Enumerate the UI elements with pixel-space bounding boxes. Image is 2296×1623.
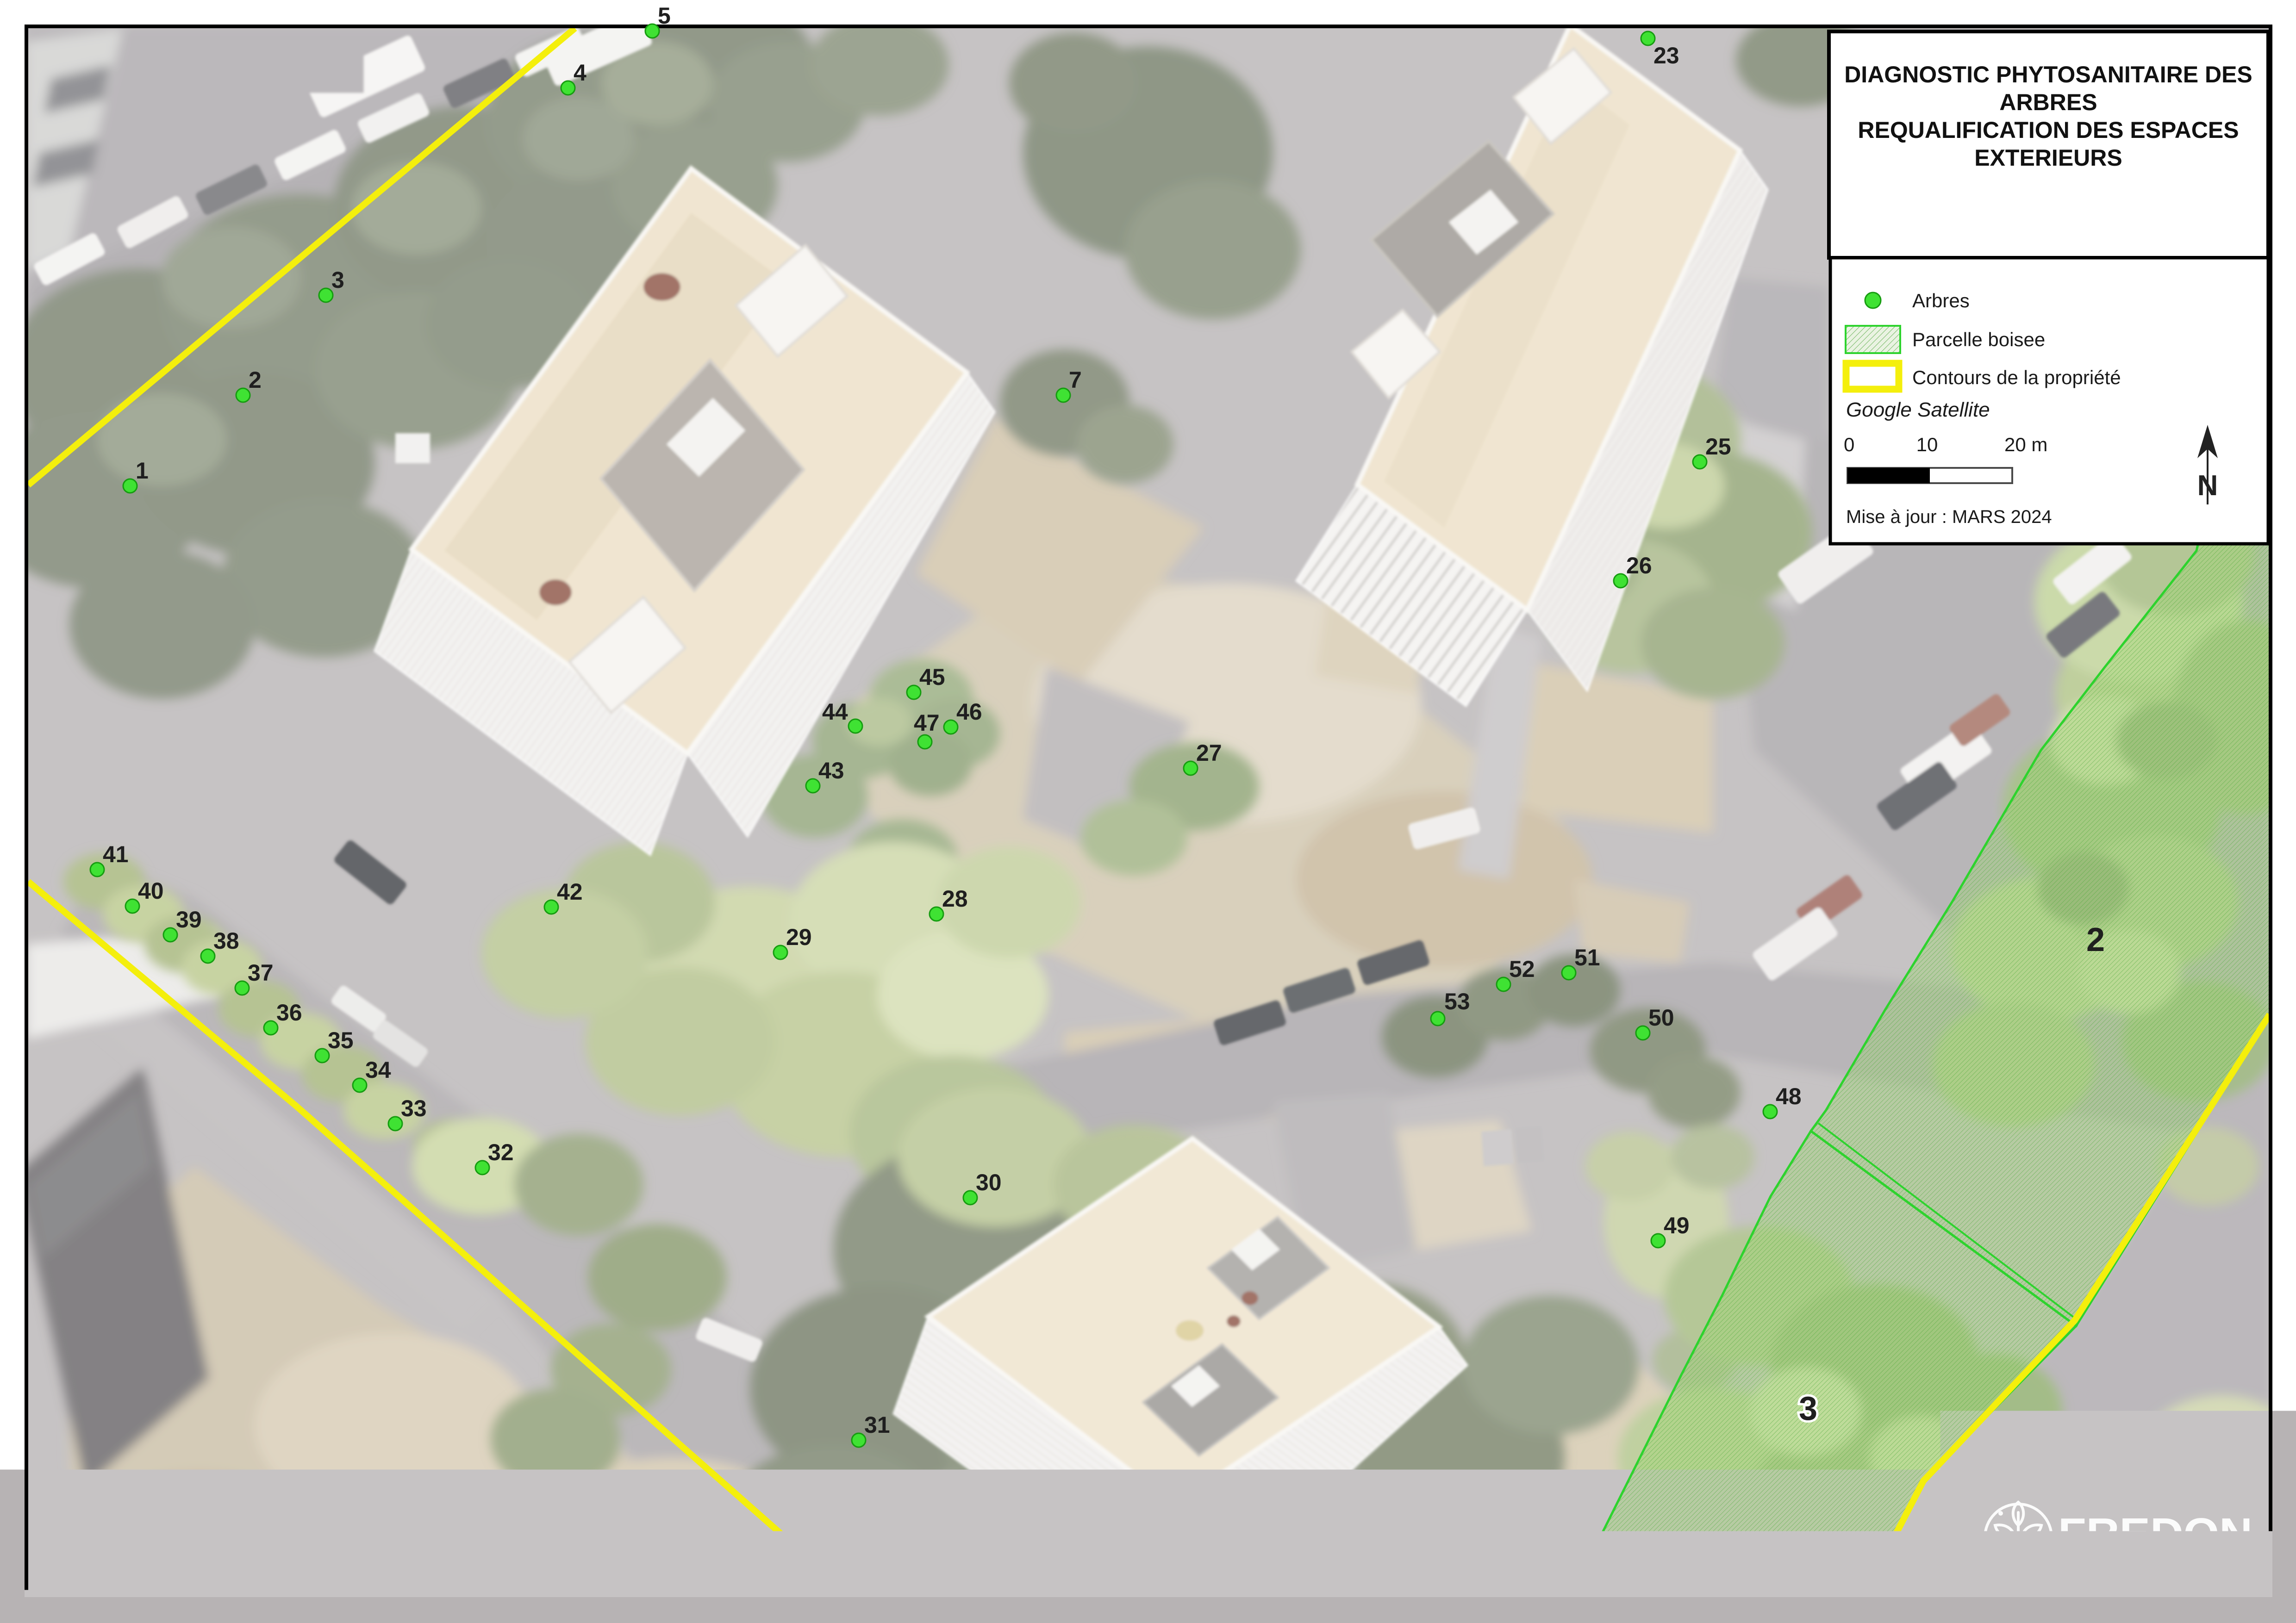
svg-text:ILE DE FRANCE: ILE DE FRANCE bbox=[2060, 1551, 2254, 1578]
svg-text:4: 4 bbox=[574, 60, 586, 86]
svg-text:27: 27 bbox=[1196, 740, 1222, 766]
svg-text:53: 53 bbox=[1444, 989, 1470, 1014]
svg-text:DIAGNOSTIC PHYTOSANITAIRE DES: DIAGNOSTIC PHYTOSANITAIRE DES bbox=[1844, 62, 2252, 87]
svg-text:25: 25 bbox=[1705, 434, 1731, 460]
svg-text:38: 38 bbox=[213, 928, 239, 954]
svg-text:52: 52 bbox=[1509, 956, 1535, 982]
svg-text:50: 50 bbox=[1648, 1005, 1674, 1031]
svg-text:5: 5 bbox=[658, 3, 671, 29]
svg-text:40: 40 bbox=[138, 878, 164, 904]
svg-text:46: 46 bbox=[956, 699, 982, 725]
svg-text:43: 43 bbox=[818, 758, 844, 784]
svg-text:32: 32 bbox=[488, 1139, 514, 1165]
svg-text:48: 48 bbox=[1776, 1083, 1802, 1109]
svg-text:2: 2 bbox=[249, 367, 262, 393]
svg-text:35: 35 bbox=[328, 1027, 354, 1053]
svg-text:0: 0 bbox=[1844, 434, 1854, 455]
svg-text:36: 36 bbox=[276, 1000, 302, 1026]
svg-text:28: 28 bbox=[942, 886, 968, 912]
svg-text:33: 33 bbox=[401, 1095, 427, 1121]
svg-text:42: 42 bbox=[557, 879, 583, 905]
svg-text:49: 49 bbox=[1664, 1213, 1690, 1238]
svg-text:3: 3 bbox=[331, 267, 344, 293]
svg-text:EXTERIEURS: EXTERIEURS bbox=[1974, 145, 2122, 171]
svg-text:30: 30 bbox=[976, 1169, 1002, 1195]
svg-text:Arbres: Arbres bbox=[1912, 290, 1970, 311]
svg-text:ARBRES: ARBRES bbox=[1999, 89, 2097, 115]
svg-text:39: 39 bbox=[176, 907, 202, 933]
svg-text:Parcelle boisee: Parcelle boisee bbox=[1912, 329, 2045, 350]
svg-text:26: 26 bbox=[1626, 553, 1652, 578]
svg-text:7: 7 bbox=[1069, 367, 1082, 393]
svg-text:10: 10 bbox=[1916, 434, 1938, 455]
svg-text:23: 23 bbox=[1653, 43, 1679, 68]
svg-text:Mise à jour : MARS 2024: Mise à jour : MARS 2024 bbox=[1846, 507, 2052, 527]
svg-text:51: 51 bbox=[1574, 945, 1600, 970]
svg-text:34: 34 bbox=[365, 1057, 391, 1083]
svg-text:1: 1 bbox=[136, 458, 149, 484]
svg-text:Google Satellite: Google Satellite bbox=[1846, 398, 1990, 421]
svg-text:3: 3 bbox=[1799, 1390, 1817, 1427]
svg-text:45: 45 bbox=[919, 664, 945, 690]
svg-text:31: 31 bbox=[864, 1412, 890, 1438]
svg-text:47: 47 bbox=[914, 710, 940, 736]
svg-text:2: 2 bbox=[2086, 921, 2105, 958]
svg-text:N: N bbox=[2197, 470, 2218, 502]
svg-text:41: 41 bbox=[103, 841, 129, 867]
svg-text:29: 29 bbox=[786, 924, 812, 950]
svg-text:44: 44 bbox=[822, 699, 848, 725]
svg-text:20 m: 20 m bbox=[2004, 434, 2047, 455]
svg-text:Contours de la propriété: Contours de la propriété bbox=[1912, 367, 2121, 388]
svg-text:37: 37 bbox=[248, 960, 274, 986]
svg-text:REQUALIFICATION DES ESPACES: REQUALIFICATION DES ESPACES bbox=[1858, 117, 2239, 143]
